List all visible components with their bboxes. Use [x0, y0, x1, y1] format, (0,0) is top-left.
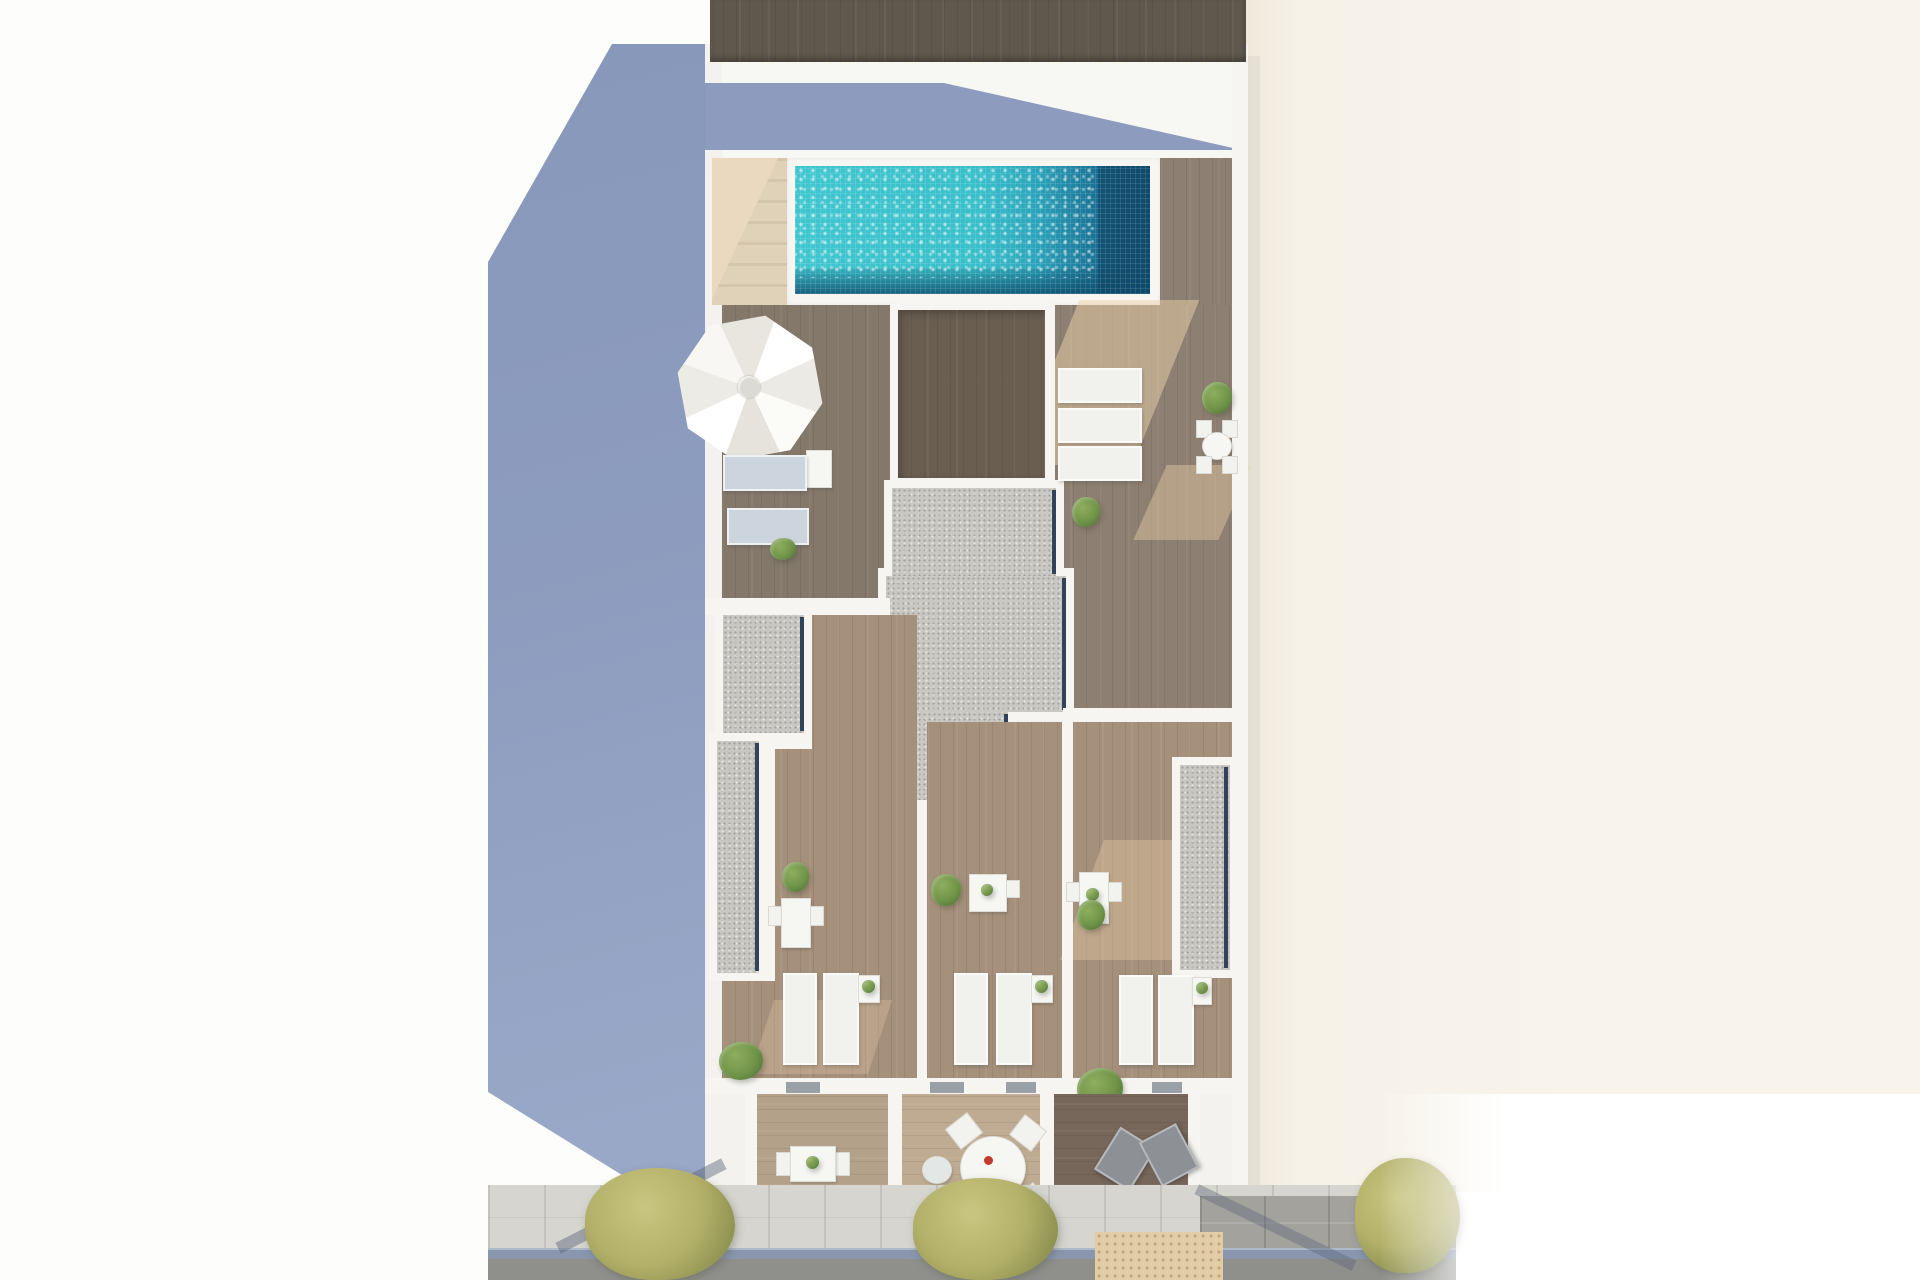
door-sill-3 [1006, 1082, 1036, 1093]
terrace-right-chair-1 [1066, 882, 1080, 902]
terrace-right-lounger-2 [1158, 975, 1194, 1065]
wall-horizontal-left [705, 598, 890, 615]
terrace-left-chair-1 [768, 906, 782, 926]
sunlit-terrace-patch-left [750, 1000, 892, 1074]
pool-dining-chair-3 [1196, 456, 1212, 474]
wall-horizontal-right [1063, 708, 1240, 722]
balcony-2-glass-table [922, 1156, 952, 1184]
terrace-left-lounger-1 [783, 973, 817, 1065]
terrace-right-lounger-1 [1119, 975, 1153, 1065]
neighbour-shadow-roof [488, 44, 722, 1185]
street-tree-1 [585, 1168, 735, 1280]
terrace-left-lounger-2 [823, 973, 859, 1065]
gravel-glass-right [1224, 767, 1228, 968]
pool-lounger-2 [1058, 408, 1142, 443]
door-sill-1 [786, 1082, 820, 1093]
gravel-glass-left-2 [755, 743, 759, 971]
gravel-strip-left-narrow [717, 741, 759, 973]
gravel-strip-right [1180, 765, 1230, 970]
neighbour-wall-cream [1240, 0, 1920, 1192]
terrace-right-chair-2 [1108, 882, 1122, 902]
pool-lounger-3 [1058, 446, 1142, 481]
skylight-glass-edge-1 [1052, 490, 1056, 574]
pool-dining-chair-4 [1222, 456, 1238, 474]
skylight-glass-edge-2 [1062, 578, 1066, 710]
roof-plank-band [710, 0, 1246, 62]
gravel-glass-left-1 [800, 617, 804, 731]
tactile-ramp [1095, 1232, 1223, 1280]
balcony-1-chair-2 [834, 1152, 850, 1176]
wall-building-right [1232, 62, 1248, 1192]
bottom-right-white [1520, 1094, 1920, 1280]
wall-unit-a [917, 800, 927, 1078]
court-lounger-2 [727, 508, 809, 545]
cream-roof-edge-shadow [1248, 56, 1260, 1186]
court-lounger-1 [723, 455, 807, 491]
court-side-table [806, 450, 832, 488]
gravel-strip-left-wide [723, 615, 804, 733]
terrace-middle-chair-1 [1006, 880, 1020, 898]
pool-deck-right [1160, 158, 1232, 305]
granite-block-top [892, 488, 1056, 576]
terrace-left-chair-2 [810, 906, 824, 926]
terrace-left-table [781, 898, 811, 948]
door-sill-2 [930, 1082, 964, 1093]
terrace-middle-lounger-1 [954, 973, 988, 1065]
dark-wood-block [898, 310, 1045, 478]
pool-lounger-1 [1058, 368, 1142, 403]
parasol-hub [738, 376, 760, 398]
pool-tile-grid [795, 166, 1150, 294]
street-tree-2 [913, 1178, 1058, 1280]
door-sill-4 [1152, 1082, 1182, 1093]
balcony-2-table-decor [984, 1156, 993, 1165]
terrace-middle-lounger-2 [996, 973, 1032, 1065]
rooftop-aerial-render [0, 0, 1920, 1280]
